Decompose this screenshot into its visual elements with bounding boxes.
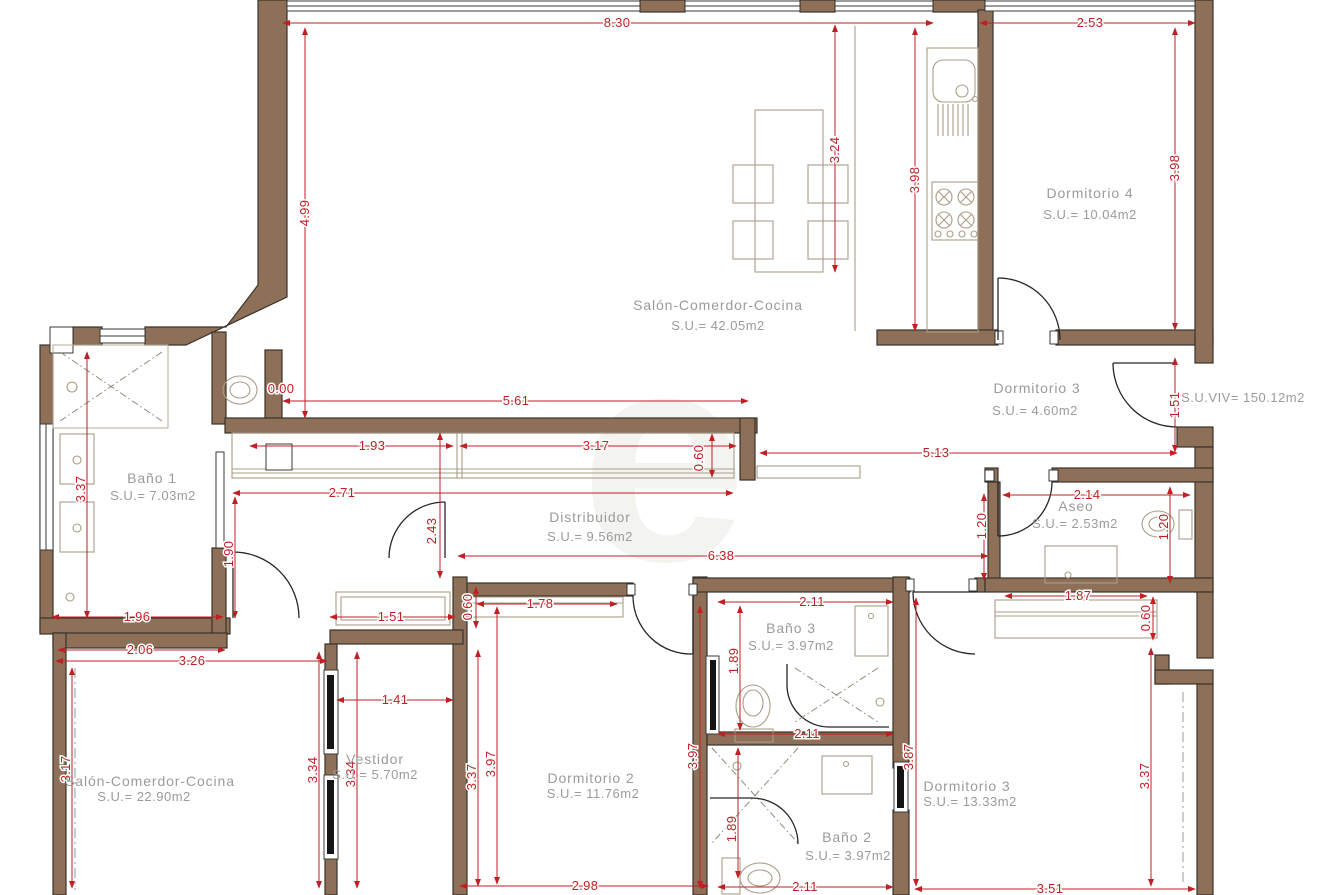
wall xyxy=(453,577,467,895)
wall xyxy=(1052,468,1213,482)
wall xyxy=(1197,684,1213,895)
basin-drain xyxy=(844,762,849,767)
room-area: S.U.= 2.53m2 xyxy=(1032,516,1118,531)
dim-label: 4.99 xyxy=(297,200,312,227)
wall xyxy=(330,630,463,644)
dim-label: 1.78 xyxy=(527,596,554,611)
dim-label: 2.11 xyxy=(792,879,818,894)
dim-label: 0.60 xyxy=(1138,605,1153,632)
wall xyxy=(740,418,755,480)
wall xyxy=(1177,427,1213,447)
dim-label: 1.41 xyxy=(382,692,409,707)
room-name: Salón-Comerdor-Cocina xyxy=(633,297,803,313)
basin-drain xyxy=(869,614,874,619)
dim-label: 2.53 xyxy=(1077,15,1104,30)
dim-label: 1.20 xyxy=(1156,514,1171,541)
wall xyxy=(933,0,985,12)
door-jamb xyxy=(969,579,977,591)
sliding-panel-leaf xyxy=(327,780,334,854)
closet-column xyxy=(266,444,292,470)
wall xyxy=(455,583,633,596)
toilet-tank xyxy=(1179,510,1192,539)
wall xyxy=(893,577,909,768)
wall xyxy=(1195,0,1213,363)
dim-label: 1.89 xyxy=(726,648,741,675)
sink-drain xyxy=(956,85,968,97)
dim-label: 2.71 xyxy=(329,485,356,500)
basin-drain xyxy=(73,456,81,464)
dim-label: 5.13 xyxy=(923,445,950,460)
washbasin xyxy=(60,502,94,552)
wall xyxy=(1197,592,1213,658)
floorplan-canvas: e xyxy=(0,0,1320,895)
dim-label: 3.87 xyxy=(901,744,916,771)
dim-label: 3.17 xyxy=(583,438,610,453)
chair xyxy=(808,165,848,203)
wall xyxy=(225,418,757,433)
room-name: Dormitorio 2 xyxy=(547,770,634,786)
sliding-door-leaf xyxy=(897,766,904,808)
sliding-panel-leaf xyxy=(327,675,334,749)
sliding-door-leaf xyxy=(710,660,716,730)
stove-knob xyxy=(947,231,953,237)
dim-label: 5.61 xyxy=(503,393,530,408)
wall xyxy=(325,644,337,672)
wall xyxy=(693,578,910,592)
dim-label: 8.30 xyxy=(604,15,631,30)
shower-head xyxy=(876,698,884,706)
dim-label: 0.00 xyxy=(268,381,295,396)
room-area: S.U.= 3.97m2 xyxy=(748,638,834,653)
room-name: Vestidor xyxy=(346,751,404,767)
dim-label: 1.89 xyxy=(724,816,739,843)
dim-label: 3.24 xyxy=(827,137,842,164)
room-name: Salón-Comerdor-Cocina xyxy=(65,773,235,789)
room-name: Baño 1 xyxy=(127,470,177,486)
toilet-bowl xyxy=(230,382,250,398)
door-jamb xyxy=(985,470,994,481)
vanity-drain xyxy=(1065,572,1071,578)
dim-label: 2.11 xyxy=(794,726,820,741)
dim-label: 2.06 xyxy=(127,642,154,657)
room-name: Aseo xyxy=(1058,498,1094,514)
wall xyxy=(212,332,226,424)
room-name: Distribuidor xyxy=(549,509,631,525)
door-jamb xyxy=(689,584,697,595)
door-arc xyxy=(233,552,299,618)
burner-spokes xyxy=(938,191,972,226)
room-area: S.U.= 10.04m2 xyxy=(1043,207,1137,222)
wall xyxy=(640,0,685,12)
dim-label: 3.37 xyxy=(464,764,479,791)
floor-drain xyxy=(66,593,74,601)
wall xyxy=(73,327,102,345)
toilet xyxy=(223,376,257,404)
door-jamb xyxy=(1049,470,1058,481)
dim-label: 2.11 xyxy=(799,594,825,609)
stove-knob xyxy=(971,231,977,237)
door-panel xyxy=(216,452,224,548)
dim-label: 3.98 xyxy=(907,167,922,194)
sink-faucet xyxy=(973,97,978,102)
door-jamb xyxy=(627,584,635,595)
watermark-glyph: e xyxy=(580,288,747,624)
wall xyxy=(800,0,835,12)
dim-label: 2.98 xyxy=(572,878,599,893)
dim-label: 1.87 xyxy=(1065,588,1092,603)
door-jamb xyxy=(906,579,914,591)
dim-label: 1.93 xyxy=(359,438,386,453)
room-name: Dormitorio 3 xyxy=(923,778,1010,794)
door-jamb xyxy=(1050,331,1058,344)
stove-knob xyxy=(959,231,965,237)
toilet-bowl xyxy=(743,690,763,716)
door-jamb xyxy=(995,331,1003,344)
basin-drain xyxy=(73,524,81,532)
wardrobe xyxy=(995,600,1157,638)
stove-knob xyxy=(935,231,941,237)
wall xyxy=(145,0,287,345)
dim-label: 1.51 xyxy=(378,609,405,624)
hall-cabinet xyxy=(757,466,860,478)
room-area: S.U.= 7.03m2 xyxy=(110,488,196,503)
room-name: Dormitorio 3 xyxy=(993,380,1080,396)
dim-label: 1.90 xyxy=(221,541,236,568)
dim-label: 3.34 xyxy=(305,757,320,784)
dim-label: 2.43 xyxy=(424,518,439,545)
dim-label: 3.97 xyxy=(483,751,498,778)
room-area: S.U.= 3.97m2 xyxy=(805,848,891,863)
wall xyxy=(1056,330,1213,345)
chair xyxy=(733,165,773,203)
shower-head xyxy=(733,762,741,770)
wall xyxy=(325,857,337,895)
dim-label: 3.51 xyxy=(1037,881,1064,895)
dim-label: 1.20 xyxy=(974,513,989,540)
shower-head xyxy=(67,382,77,392)
dim-label: 1.51 xyxy=(1167,392,1182,419)
room-area: S.U.= 22.90m2 xyxy=(97,789,191,804)
dim-label: 3.37 xyxy=(73,476,88,503)
wall xyxy=(1155,670,1213,684)
chair xyxy=(808,221,848,259)
room-area: S.U.= 11.76m2 xyxy=(547,786,640,801)
room-area: S.U.= 13.33m2 xyxy=(923,794,1017,809)
dim-label: 0.60 xyxy=(691,445,706,472)
wall xyxy=(978,10,993,332)
total-area-label: S.U.VIV= 150.12m2 xyxy=(1181,390,1305,405)
door-arc xyxy=(913,592,975,654)
toilet xyxy=(740,863,780,893)
room-name: Baño 2 xyxy=(822,829,872,845)
sink-drainer xyxy=(938,104,968,136)
room-name: Dormitorio 4 xyxy=(1046,185,1133,201)
room-name: Baño 3 xyxy=(766,620,816,636)
wall xyxy=(893,810,909,895)
room-area: S.U.= 42.05m2 xyxy=(671,318,765,333)
dim-label: 1.96 xyxy=(124,609,151,624)
dim-label: 0.60 xyxy=(460,594,475,621)
room-area: S.U.= 4.60m2 xyxy=(992,403,1078,418)
dim-label: 3.37 xyxy=(1137,763,1152,790)
dining-table xyxy=(755,110,823,272)
dim-label: 3.97 xyxy=(685,743,700,770)
dim-label: 3.98 xyxy=(1167,155,1182,182)
room-area: S.U.= 5.70m2 xyxy=(332,767,418,782)
toilet-tank xyxy=(722,858,740,894)
toilet xyxy=(736,685,770,727)
wall xyxy=(985,578,1213,592)
kitchen-sink xyxy=(933,60,975,102)
room-area: S.U.= 9.56m2 xyxy=(547,529,633,544)
chair xyxy=(733,221,773,259)
toilet-bowl xyxy=(748,870,772,886)
dim-label: 3.26 xyxy=(179,653,206,668)
dim-label: 6.38 xyxy=(708,548,735,563)
floorplan-drawing: e xyxy=(0,0,1320,895)
